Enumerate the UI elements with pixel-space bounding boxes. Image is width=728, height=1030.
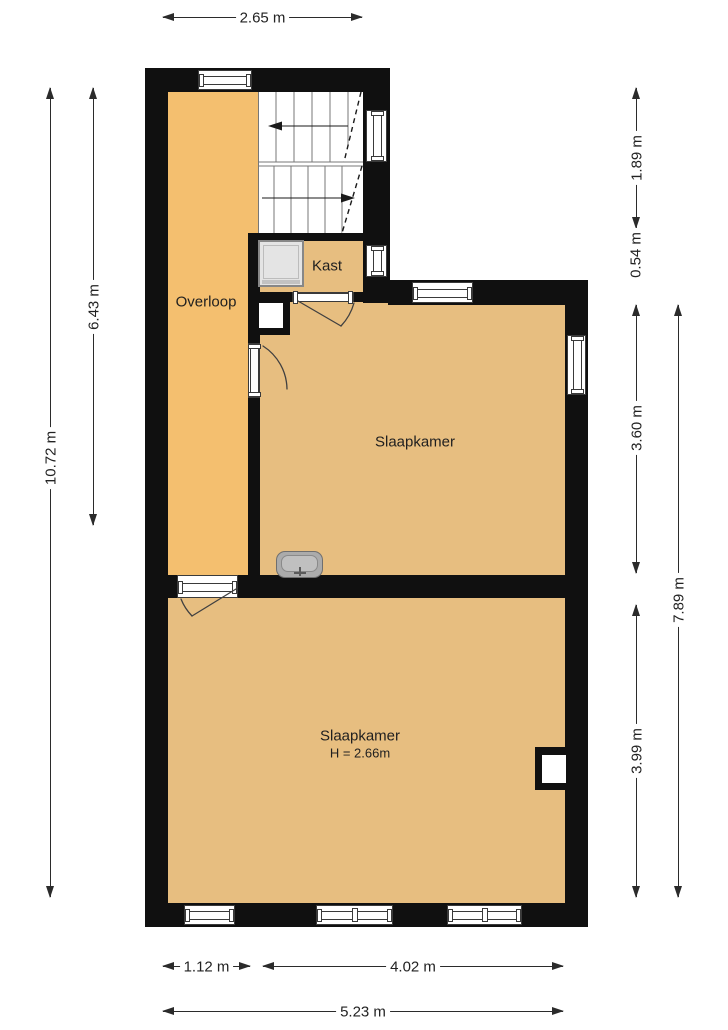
door-swing-arcs: [0, 0, 728, 1030]
dim-left-upper: 6.43 m: [93, 88, 94, 525]
bedroom-upper-label: Slaapkamer: [375, 434, 455, 451]
bedroom-lower-height-note: H = 2.66m: [330, 746, 390, 761]
dim-left-total: 10.72 m: [50, 88, 51, 897]
floorplan: Overloop Kast Slaapkamer Slaapkamer H = …: [0, 0, 728, 1030]
overloop-label: Overloop: [176, 294, 237, 311]
bedroom-lower-label: Slaapkamer: [320, 728, 400, 745]
dim-right-kast: 0.54 m: [628, 228, 645, 282]
dim-right-bedroom-upper: 3.60 m: [636, 305, 637, 573]
dim-right-bedroom-lower: 3.99 m: [636, 605, 637, 897]
dim-right-total: 7.89 m: [678, 305, 679, 897]
dim-bottom-total: 5.23 m: [163, 1011, 563, 1012]
dim-top-width: 2.65 m: [163, 17, 362, 18]
kast-label: Kast: [312, 258, 342, 275]
dim-bottom-right: 4.02 m: [263, 966, 563, 967]
dim-right-stairs: 1.89 m: [636, 88, 637, 228]
dim-bottom-left: 1.12 m: [163, 966, 250, 967]
